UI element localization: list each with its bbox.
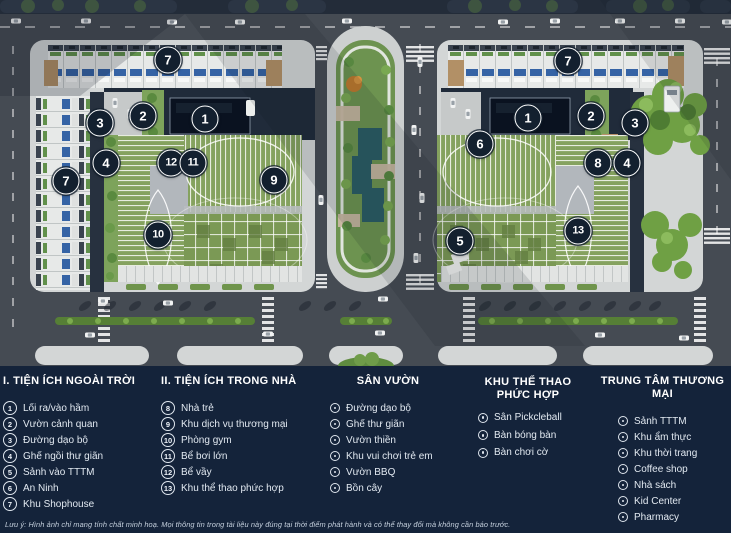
legend-title-garden: SÂN VƯỜN xyxy=(318,375,458,388)
legend-items-sports: Sân PickcleballBàn bóng bànBàn chơi cờ xyxy=(462,409,594,462)
legend-item-label: Sân Pickcleball xyxy=(494,412,562,423)
legend-dot-icon xyxy=(330,451,340,461)
legend-title-line: KHU THỂ THAO xyxy=(462,376,594,389)
legend-column-garden: SÂN VƯỜNĐường dạo bộGhế thư giãnVườn thi… xyxy=(318,375,458,496)
hedge-median xyxy=(55,317,678,325)
legend-item: 13Khu thể thao phức hợp xyxy=(161,480,313,496)
map-marker-2: 2 xyxy=(578,103,605,130)
legend-number-icon: 8 xyxy=(161,401,175,415)
legend-dot-icon xyxy=(478,413,488,423)
legend-item-label: Vườn cảnh quan xyxy=(23,419,98,430)
site-plan-map: 73214121197107123684513 xyxy=(0,0,731,366)
legend-item-label: Lối ra/vào hầm xyxy=(23,403,89,414)
site-plan-graphic xyxy=(0,0,731,366)
map-marker-4: 4 xyxy=(93,150,120,177)
map-marker-8: 8 xyxy=(585,150,612,177)
legend-items-outdoor: 1Lối ra/vào hầm2Vườn cảnh quan3Đường dạo… xyxy=(3,400,155,512)
legend-item: Khu ẩm thực xyxy=(618,429,729,445)
legend-item: Kid Center xyxy=(618,493,729,509)
legend-item: 5Sảnh vào TTTM xyxy=(3,464,155,480)
mall-roof-left xyxy=(118,135,307,284)
legend-item-label: Sảnh vào TTTM xyxy=(23,467,95,478)
legend-number-icon: 13 xyxy=(161,481,175,495)
legend-item-label: Vườn BBQ xyxy=(346,467,395,478)
legend-title-line: I. TIỆN ÍCH NGOÀI TRỜI xyxy=(3,375,155,388)
legend-item-label: An Ninh xyxy=(23,483,59,494)
legend-number-icon: 1 xyxy=(3,401,17,415)
legend-panel: I. TIỆN ÍCH NGOÀI TRỜI1Lối ra/vào hầm2Vư… xyxy=(0,366,731,533)
legend-item-label: Coffee shop xyxy=(634,464,688,475)
legend-item: 10Phòng gym xyxy=(161,432,313,448)
legend-item: 3Đường dạo bộ xyxy=(3,432,155,448)
legend-item-label: Nhà sách xyxy=(634,480,676,491)
legend-dot-icon xyxy=(618,480,628,490)
legend-item-label: Khu thể thao phức hợp xyxy=(181,483,284,494)
page: 73214121197107123684513 I. TIỆN ÍCH NGOÀ… xyxy=(0,0,731,533)
legend-item: Bồn cây xyxy=(330,480,458,496)
legend-item: 6An Ninh xyxy=(3,480,155,496)
legend-column-indoor: II. TIỆN ÍCH TRONG NHÀ8Nhà trẻ9Khu dịch … xyxy=(161,375,313,496)
legend-dot-icon xyxy=(330,467,340,477)
legend-item: Vườn BBQ xyxy=(330,464,458,480)
legend-column-sports: KHU THỂ THAOPHỨC HỢPSân PickcleballBàn b… xyxy=(462,376,594,462)
legend-item: Vườn thiền xyxy=(330,432,458,448)
legend-item: Đường dạo bộ xyxy=(330,400,458,416)
legend-item-label: Bồn cây xyxy=(346,483,382,494)
legend-number-icon: 5 xyxy=(3,465,17,479)
legend-dot-icon xyxy=(330,403,340,413)
legend-number-icon: 6 xyxy=(3,481,17,495)
legend-item: Nhà sách xyxy=(618,477,729,493)
legend-item: 7Khu Shophouse xyxy=(3,496,155,512)
legend-dot-icon xyxy=(330,419,340,429)
legend-item: Sảnh TTTM xyxy=(618,413,729,429)
map-marker-1: 1 xyxy=(192,106,219,133)
legend-dot-icon xyxy=(478,430,488,440)
legend-item-label: Khu thời trang xyxy=(634,448,697,459)
legend-column-outdoor: I. TIỆN ÍCH NGOÀI TRỜI1Lối ra/vào hầm2Vư… xyxy=(3,375,155,512)
map-marker-11: 11 xyxy=(180,150,207,177)
map-marker-9: 9 xyxy=(261,167,288,194)
disclaimer-note: Lưu ý: Hình ảnh chỉ mang tính chất minh … xyxy=(5,520,727,529)
map-marker-5: 5 xyxy=(447,228,474,255)
map-marker-3: 3 xyxy=(622,110,649,137)
legend-item: Sân Pickcleball xyxy=(478,409,594,427)
legend-item: Khu vui chơi trẻ em xyxy=(330,448,458,464)
legend-item-label: Vườn thiền xyxy=(346,435,396,446)
legend-dot-icon xyxy=(330,435,340,445)
legend-number-icon: 4 xyxy=(3,449,17,463)
legend-title-line: TRUNG TÂM THƯƠNG MẠI xyxy=(596,375,729,401)
legend-column-mall: TRUNG TÂM THƯƠNG MẠISảnh TTTMKhu ẩm thực… xyxy=(596,375,729,525)
legend-item-label: Bàn bóng bàn xyxy=(494,430,556,441)
legend-item-label: Khu vui chơi trẻ em xyxy=(346,451,433,462)
legend-title-mall: TRUNG TÂM THƯƠNG MẠI xyxy=(596,375,729,401)
legend-title-sports: KHU THỂ THAOPHỨC HỢP xyxy=(462,376,594,402)
map-marker-13: 13 xyxy=(565,218,592,245)
legend-title-indoor: II. TIỆN ÍCH TRONG NHÀ xyxy=(161,375,313,388)
legend-number-icon: 3 xyxy=(3,433,17,447)
legend-item: 4Ghế ngồi thư giãn xyxy=(3,448,155,464)
legend-number-icon: 2 xyxy=(3,417,17,431)
map-marker-7: 7 xyxy=(53,168,80,195)
legend-dot-icon xyxy=(618,432,628,442)
legend-items-garden: Đường dạo bộGhế thư giãnVườn thiềnKhu vu… xyxy=(318,400,458,496)
legend-item-label: Ghế thư giãn xyxy=(346,419,404,430)
legend-number-icon: 7 xyxy=(3,497,17,511)
legend-items-indoor: 8Nhà trẻ9Khu dịch vụ thương mại10Phòng g… xyxy=(161,400,313,496)
map-marker-7: 7 xyxy=(555,48,582,75)
legend-item-label: Bàn chơi cờ xyxy=(494,447,548,458)
legend-title-line: SÂN VƯỜN xyxy=(318,375,458,388)
legend-item-label: Khu ẩm thực xyxy=(634,432,691,443)
legend-title-outdoor: I. TIỆN ÍCH NGOÀI TRỜI xyxy=(3,375,155,388)
legend-item-label: Bể vầy xyxy=(181,467,212,478)
legend-item-label: Kid Center xyxy=(634,496,681,507)
legend-item-label: Bể bơi lớn xyxy=(181,451,227,462)
legend-number-icon: 9 xyxy=(161,417,175,431)
map-marker-6: 6 xyxy=(467,131,494,158)
legend-item: Bàn bóng bàn xyxy=(478,427,594,445)
legend-item-label: Khu dịch vụ thương mại xyxy=(181,419,288,430)
map-marker-10: 10 xyxy=(145,222,172,249)
legend-title-line: PHỨC HỢP xyxy=(462,389,594,402)
legend-item: 1Lối ra/vào hầm xyxy=(3,400,155,416)
legend-item-label: Đường dạo bộ xyxy=(23,435,88,446)
legend-item: 8Nhà trẻ xyxy=(161,400,313,416)
legend-number-icon: 10 xyxy=(161,433,175,447)
legend-item: Khu thời trang xyxy=(618,445,729,461)
legend-dot-icon xyxy=(618,416,628,426)
map-marker-1: 1 xyxy=(515,105,542,132)
legend-item-label: Ghế ngồi thư giãn xyxy=(23,451,103,462)
legend-item: Coffee shop xyxy=(618,461,729,477)
legend-item-label: Đường dạo bộ xyxy=(346,403,411,414)
legend-dot-icon xyxy=(618,496,628,506)
legend-item-label: Khu Shophouse xyxy=(23,499,94,510)
map-marker-4: 4 xyxy=(614,150,641,177)
map-marker-3: 3 xyxy=(87,110,114,137)
legend-title-line: II. TIỆN ÍCH TRONG NHÀ xyxy=(161,375,313,388)
legend-dot-icon xyxy=(478,448,488,458)
legend-item-label: Phòng gym xyxy=(181,435,232,446)
legend-item: 11Bể bơi lớn xyxy=(161,448,313,464)
legend-item: 9Khu dịch vụ thương mại xyxy=(161,416,313,432)
legend-items-mall: Sảnh TTTMKhu ẩm thựcKhu thời trangCoffee… xyxy=(596,413,729,525)
legend-item-label: Sảnh TTTM xyxy=(634,416,687,427)
legend-dot-icon xyxy=(330,483,340,493)
legend-item: Ghế thư giãn xyxy=(330,416,458,432)
legend-dot-icon xyxy=(618,448,628,458)
legend-item: 2Vườn cảnh quan xyxy=(3,416,155,432)
legend-item-label: Nhà trẻ xyxy=(181,403,214,414)
legend-dot-icon xyxy=(618,464,628,474)
legend-item: Bàn chơi cờ xyxy=(478,444,594,462)
legend-number-icon: 11 xyxy=(161,449,175,463)
legend-item: 12Bể vầy xyxy=(161,464,313,480)
legend-number-icon: 12 xyxy=(161,465,175,479)
map-marker-2: 2 xyxy=(130,103,157,130)
map-marker-7: 7 xyxy=(155,47,182,74)
